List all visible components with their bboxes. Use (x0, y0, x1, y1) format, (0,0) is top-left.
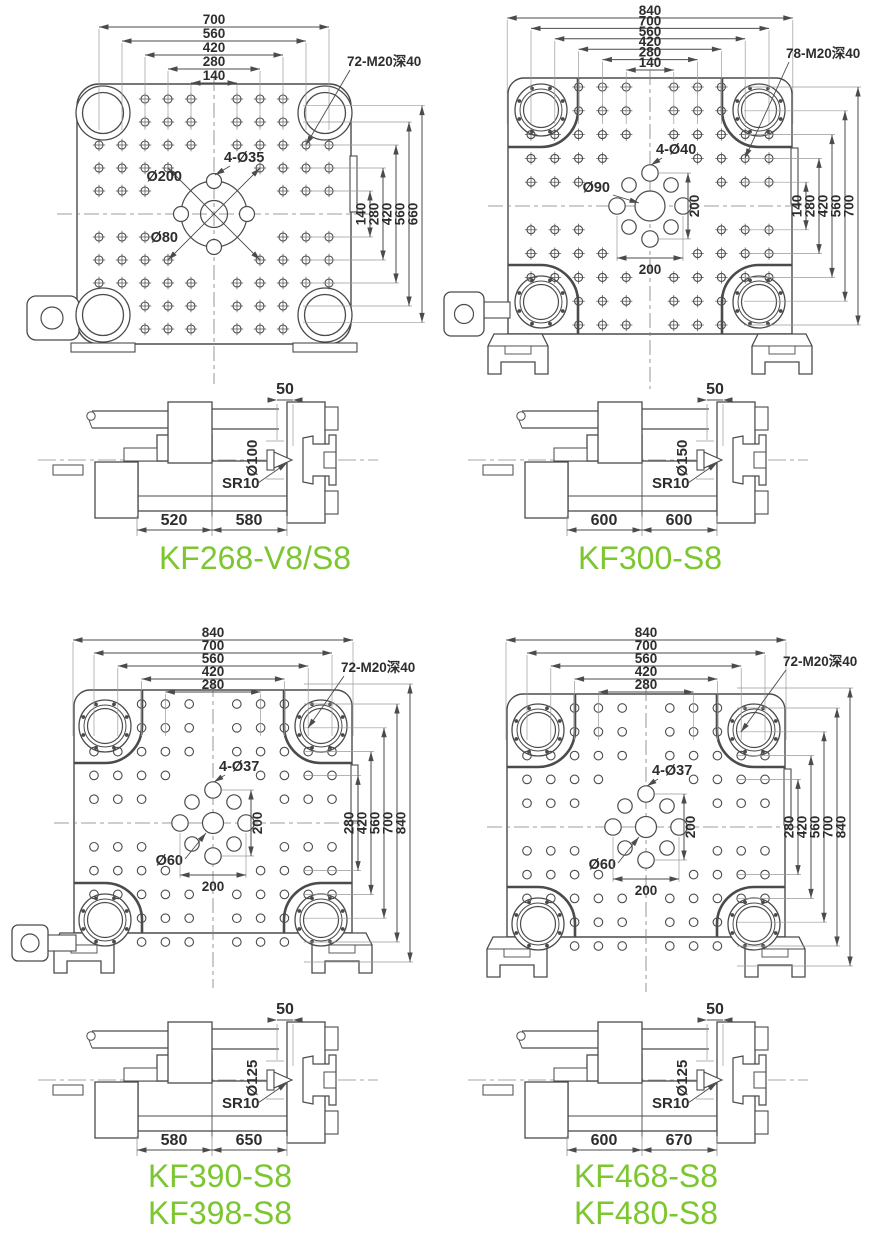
side-view-kf468: 50Ø125SR10600670 (460, 998, 820, 1176)
horizontal-pitch-dim: 200 (639, 262, 662, 277)
thread-note-label: 78-M20深40 (786, 45, 860, 61)
thread-note-label: 72-M20深40 (783, 653, 857, 669)
model-label: KF300-S8 (470, 540, 830, 577)
dim-label: 420 (203, 40, 226, 55)
vertical-pitch-dim: 200 (683, 816, 698, 839)
clamping-unit-silhouette (38, 1022, 378, 1143)
nozzle-protrusion-dim: 50 (276, 381, 294, 398)
model-labels-kf390: KF390-S8 KF398-S8 (40, 1158, 400, 1232)
thread-note-label: 72-M20深40 (341, 659, 415, 675)
dim-label: 840 (834, 816, 849, 839)
platen-plan-view-kf468: 4-Ø37Ø6020020084070056042028028042056070… (437, 600, 873, 1000)
platen-dimension-sheet: Ø200Ø804-Ø357005604202801401402804205606… (0, 0, 873, 1241)
vertical-pitch-dim: 200 (250, 812, 265, 835)
side-view-kf300: 50Ø150SR10600600 (460, 378, 820, 556)
nozzle-radius-callout: SR10 (652, 1095, 690, 1112)
side-view-kf390: 50Ø125SR10580650 (30, 998, 390, 1176)
base-left-dim: 600 (591, 1132, 618, 1149)
thread-note-label: 72-M20深40 (347, 53, 421, 69)
center-hole-callout: Ø60 (156, 853, 183, 869)
center-hole-callout: Ø80 (151, 230, 178, 246)
base-right-dim: 670 (666, 1132, 693, 1149)
nozzle-protrusion-dim: 50 (276, 1001, 294, 1018)
clamping-unit-silhouette (468, 1022, 808, 1143)
vertical-pitch-dim: 200 (687, 195, 702, 218)
center-hole-callout: Ø60 (589, 857, 616, 873)
base-right-dim: 650 (236, 1132, 263, 1149)
horizontal-pitch-dim: 200 (202, 879, 225, 894)
dim-label: 700 (842, 195, 857, 218)
base-left-dim: 520 (161, 512, 188, 529)
horizontal-pitch-dim: 200 (635, 883, 658, 898)
clamping-unit-silhouette (468, 402, 808, 523)
carriage-block (168, 1022, 212, 1083)
model-labels-kf468: KF468-S8 KF480-S8 (466, 1158, 826, 1232)
dim-label: 660 (406, 203, 421, 226)
clamping-unit-silhouette (38, 402, 378, 523)
model-label: KF468-S8 (466, 1158, 826, 1195)
dim-label: 280 (635, 677, 658, 692)
model-label: KF268-V8/S8 (75, 540, 435, 577)
dim-label: 840 (394, 812, 409, 835)
corner-holes-callout: 4-Ø40 (656, 142, 696, 158)
dim-label: 700 (203, 12, 226, 27)
base-right-dim: 580 (236, 512, 263, 529)
corner-holes-callout: 4-Ø37 (219, 759, 259, 775)
model-labels-kf300: KF300-S8 (470, 540, 830, 577)
locating-ring-dim: Ø150 (674, 440, 691, 477)
platen-plan-view-kf390: 4-Ø37Ø6020020084070056042028028042056070… (0, 600, 436, 1000)
platen-plan-view-kf268: Ø200Ø804-Ø357005604202801401402804205606… (0, 0, 436, 395)
dim-label: 560 (203, 26, 226, 41)
nozzle-radius-callout: SR10 (222, 475, 260, 492)
carriage-block (168, 402, 212, 463)
dim-label: 140 (203, 68, 226, 83)
platen-plan-view-kf300: 4-Ø40Ø9020020084070056042028014014028042… (437, 0, 873, 395)
bolt-circle-callout: Ø200 (147, 169, 182, 185)
model-label: KF398-S8 (40, 1195, 400, 1232)
corner-holes-callout: 4-Ø37 (652, 763, 692, 779)
base-right-dim: 600 (666, 512, 693, 529)
model-label: KF480-S8 (466, 1195, 826, 1232)
model-label: KF390-S8 (40, 1158, 400, 1195)
side-view-kf268: 50Ø100SR10520580 (30, 378, 390, 556)
locating-ring-dim: Ø100 (244, 440, 261, 477)
swivel-lug (444, 292, 510, 336)
dim-label: 280 (202, 677, 225, 692)
base-left-dim: 580 (161, 1132, 188, 1149)
base-left-dim: 600 (591, 512, 618, 529)
nozzle-radius-callout: SR10 (652, 475, 690, 492)
corner-holes-callout: 4-Ø35 (224, 150, 264, 166)
model-labels-kf268: KF268-V8/S8 (75, 540, 435, 577)
swivel-lug (27, 296, 79, 340)
locating-ring-dim: Ø125 (674, 1060, 691, 1097)
center-hole-callout: Ø90 (583, 180, 610, 196)
carriage-block (598, 402, 642, 463)
dim-label: 140 (639, 55, 662, 70)
nozzle-protrusion-dim: 50 (706, 381, 724, 398)
locating-ring-dim: Ø125 (244, 1060, 261, 1097)
nozzle-protrusion-dim: 50 (706, 1001, 724, 1018)
dim-label: 280 (203, 54, 226, 69)
nozzle-radius-callout: SR10 (222, 1095, 260, 1112)
carriage-block (598, 1022, 642, 1083)
